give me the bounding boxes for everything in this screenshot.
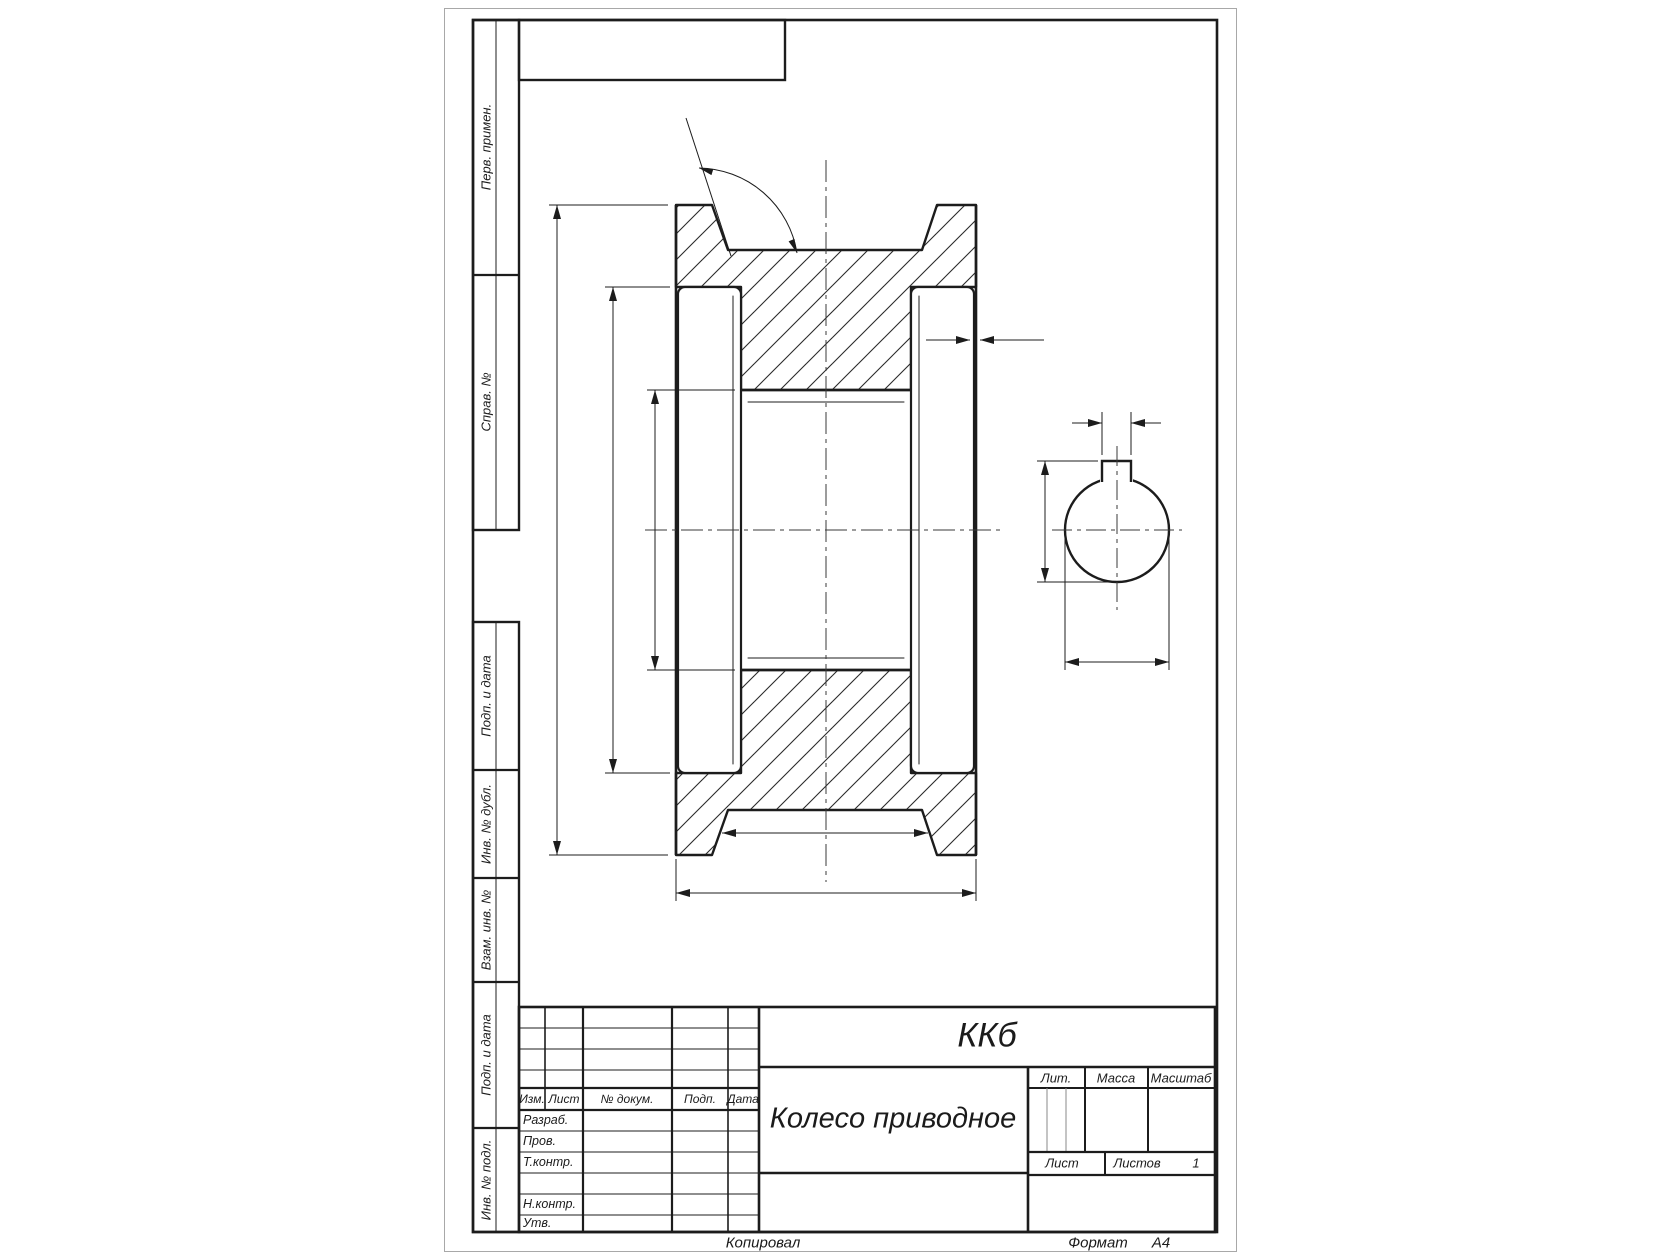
titleblock-scale-label: Масштаб [1151, 1071, 1212, 1086]
titleblock-sheets-label: Листов [1113, 1156, 1160, 1171]
footer-copied-label: Копировал [726, 1235, 801, 1252]
titleblock-col-data: Дата [727, 1092, 759, 1106]
document-designation: ККб [957, 1017, 1016, 1056]
titleblock-row-tkontr: Т.контр. [523, 1155, 573, 1169]
footer-format-label: Формат [1068, 1235, 1128, 1252]
titleblock-sheets-value: 1 [1192, 1156, 1199, 1171]
titleblock-row-razrab: Разраб. [523, 1113, 568, 1127]
titleblock-col-podp: Подп. [684, 1092, 716, 1106]
titleblock-row-prov: Пров. [523, 1134, 556, 1148]
titleblock-lit-label: Лит. [1041, 1071, 1071, 1086]
titleblock-col-dokum: № докум. [601, 1092, 654, 1106]
side-column-label-inv-dubl: Инв. № дубл. [479, 784, 494, 864]
titleblock-col-izm: Изм. [519, 1092, 545, 1106]
titleblock-row-utv: Утв. [523, 1216, 551, 1230]
drawing-canvas [0, 0, 1680, 1260]
titleblock-row-nkontr: Н.контр. [523, 1197, 576, 1211]
titleblock-mass-label: Масса [1097, 1071, 1135, 1086]
side-column-label-podp-data-1: Подп. и дата [479, 655, 494, 736]
titleblock-col-list: Лист [549, 1092, 580, 1106]
side-column-label-perv-primen: Перв. примен. [479, 104, 494, 190]
side-column-label-vzam-inv: Взам. инв. № [479, 890, 494, 970]
titleblock-sheet-label: Лист [1045, 1156, 1078, 1171]
side-column-label-podp-data-2: Подп. и дата [479, 1014, 494, 1095]
side-column-label-inv-podl: Инв. № подл. [479, 1140, 494, 1221]
part-name: Колесо приводное [770, 1103, 1017, 1136]
footer-format-value: А4 [1152, 1235, 1170, 1252]
side-column-label-sprav-no: Справ. № [479, 372, 494, 431]
screenshot-root: Перв. примен. Справ. № Подп. и дата Инв.… [0, 0, 1680, 1260]
